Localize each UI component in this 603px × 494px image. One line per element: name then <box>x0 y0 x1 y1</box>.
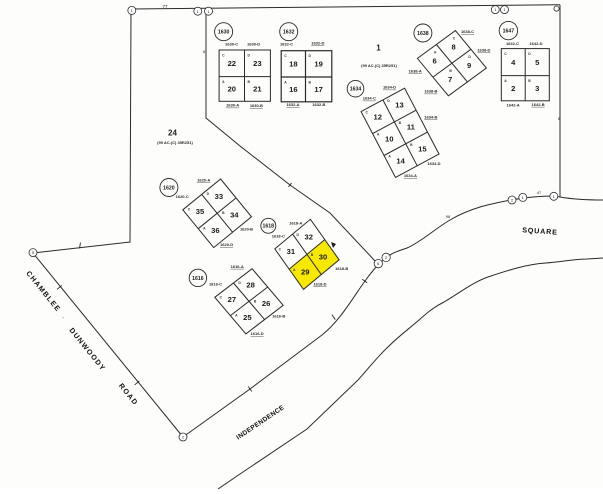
svg-text:1638: 1638 <box>417 31 429 37</box>
svg-text:77: 77 <box>162 4 168 9</box>
svg-text:1638-B: 1638-B <box>424 89 437 94</box>
svg-text:1638-A: 1638-A <box>409 69 422 74</box>
svg-text:1632-D: 1632-D <box>311 41 324 46</box>
svg-text:9: 9 <box>467 61 471 70</box>
svg-text:1630-B: 1630-B <box>250 103 263 108</box>
svg-text:1616-D: 1616-D <box>251 331 264 336</box>
svg-text:22: 22 <box>228 59 236 68</box>
svg-text:30: 30 <box>319 253 327 262</box>
svg-text:1632-C: 1632-C <box>280 41 293 46</box>
svg-text:1638-D: 1638-D <box>477 48 490 53</box>
svg-text:25: 25 <box>243 313 252 322</box>
svg-text:35: 35 <box>196 207 205 216</box>
svg-text:16: 16 <box>289 85 297 94</box>
svg-text:15: 15 <box>418 145 427 154</box>
svg-text:1634-C: 1634-C <box>363 96 376 101</box>
svg-text:(99 AC.(C) 35R251): (99 AC.(C) 35R251) <box>361 63 397 68</box>
svg-text:1620-A: 1620-A <box>197 177 210 182</box>
svg-text:1632-A: 1632-A <box>286 102 299 107</box>
svg-text:1616-B: 1616-B <box>272 314 285 319</box>
svg-text:17: 17 <box>314 85 322 94</box>
svg-text:28: 28 <box>246 281 254 290</box>
svg-text:26: 26 <box>262 299 270 308</box>
svg-text:98: 98 <box>446 214 451 219</box>
svg-text:1618-A: 1618-A <box>289 221 302 226</box>
svg-text:6: 6 <box>432 56 436 65</box>
svg-text:1632: 1632 <box>283 30 295 36</box>
svg-text:1642-D: 1642-D <box>529 41 542 46</box>
svg-text:13: 13 <box>395 101 403 110</box>
svg-text:1630: 1630 <box>218 30 230 36</box>
svg-text:12: 12 <box>373 112 381 121</box>
svg-text:14: 14 <box>396 156 405 165</box>
svg-text:1616-C: 1616-C <box>209 282 222 287</box>
svg-text:34: 34 <box>230 211 239 220</box>
svg-text:19: 19 <box>314 60 322 69</box>
svg-text:3: 3 <box>535 84 539 93</box>
svg-text:1638-C: 1638-C <box>461 29 474 34</box>
svg-text:1616-A: 1616-A <box>231 264 244 269</box>
svg-text:1634-B: 1634-B <box>424 115 437 120</box>
svg-text:32: 32 <box>304 232 312 241</box>
svg-text:1642-B: 1642-B <box>532 102 545 107</box>
svg-text:1647: 1647 <box>503 28 515 34</box>
svg-text:33: 33 <box>215 192 223 201</box>
svg-text:1634-D: 1634-D <box>427 161 440 166</box>
svg-text:1620-D: 1620-D <box>220 242 233 247</box>
svg-text:1642-A: 1642-A <box>507 102 520 107</box>
svg-text:1630-D: 1630-D <box>247 41 260 46</box>
svg-text:1: 1 <box>376 44 381 53</box>
svg-text:2: 2 <box>511 84 515 93</box>
svg-text:1620-C: 1620-C <box>176 194 189 199</box>
svg-text:1620-B: 1620-B <box>240 226 253 231</box>
svg-text:1616: 1616 <box>192 276 204 282</box>
svg-text:1634: 1634 <box>350 87 362 93</box>
svg-text:18: 18 <box>289 60 297 69</box>
svg-text:1634-A: 1634-A <box>404 173 417 178</box>
svg-text:36: 36 <box>211 226 219 235</box>
svg-text:23: 23 <box>253 59 261 68</box>
svg-text:1634-D: 1634-D <box>383 85 396 90</box>
svg-text:8: 8 <box>451 43 455 52</box>
svg-text:47: 47 <box>537 190 542 195</box>
svg-text:10: 10 <box>385 134 393 143</box>
svg-text:1632-B: 1632-B <box>312 102 325 107</box>
svg-text:1618-D: 1618-D <box>313 281 326 286</box>
svg-text:1620: 1620 <box>163 185 175 191</box>
svg-text:27: 27 <box>228 295 236 304</box>
svg-text:11: 11 <box>407 123 416 132</box>
svg-text:1618: 1618 <box>263 224 275 230</box>
svg-text:1618-C: 1618-C <box>272 234 285 239</box>
svg-text:31: 31 <box>287 247 296 256</box>
svg-text:1630-A: 1630-A <box>226 103 239 108</box>
svg-text:1642-C: 1642-C <box>506 41 519 46</box>
svg-text:20: 20 <box>228 85 236 94</box>
svg-text:7: 7 <box>448 75 452 84</box>
svg-text:(99 AC.(C) 35R251): (99 AC.(C) 35R251) <box>157 140 193 145</box>
svg-text:24: 24 <box>168 129 177 138</box>
svg-text:21: 21 <box>253 85 262 94</box>
svg-text:1630-C: 1630-C <box>225 41 238 46</box>
svg-text:29: 29 <box>301 268 309 277</box>
svg-text:1618-B: 1618-B <box>335 266 348 271</box>
